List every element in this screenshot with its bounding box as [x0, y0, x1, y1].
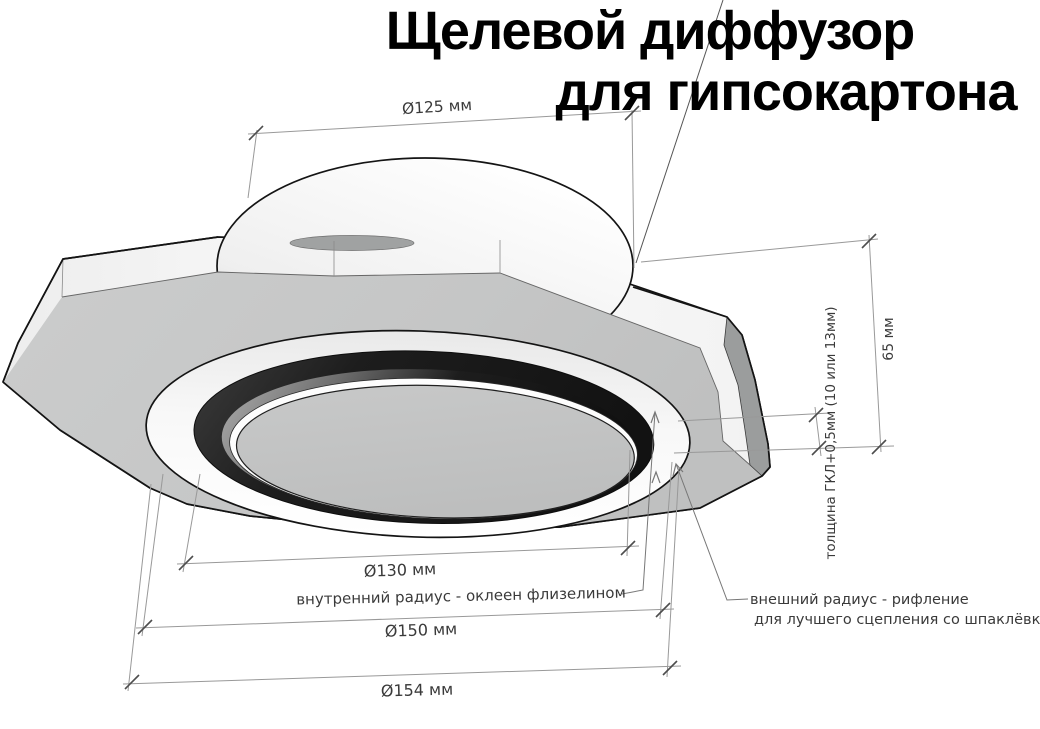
- annotation-outer-radius-line2: для лучшего сцепления со шпаклёвкой: [754, 612, 1040, 628]
- diffuser-drawing-page: Щелевой диффузор для гипсокартона Ø125 м…: [0, 0, 1040, 729]
- page-title-line1: Щелевой диффузор: [386, 0, 914, 62]
- dimension-panel-thickness: толщина ГКЛ+0,5мм (10 или 13мм): [823, 306, 839, 559]
- dimension-slot-inner-diameter: Ø130 мм: [364, 559, 437, 581]
- dimension-overall-diameter: Ø154 мм: [381, 680, 454, 701]
- page-title-line2: для гипсокартона: [555, 61, 1016, 123]
- dimension-height: 65 мм: [881, 317, 897, 360]
- collar-opening-sliver: [290, 236, 414, 251]
- dimension-face-diameter: Ø150 мм: [385, 619, 458, 641]
- annotation-outer-radius-line1: внешний радиус - рифление: [750, 592, 969, 608]
